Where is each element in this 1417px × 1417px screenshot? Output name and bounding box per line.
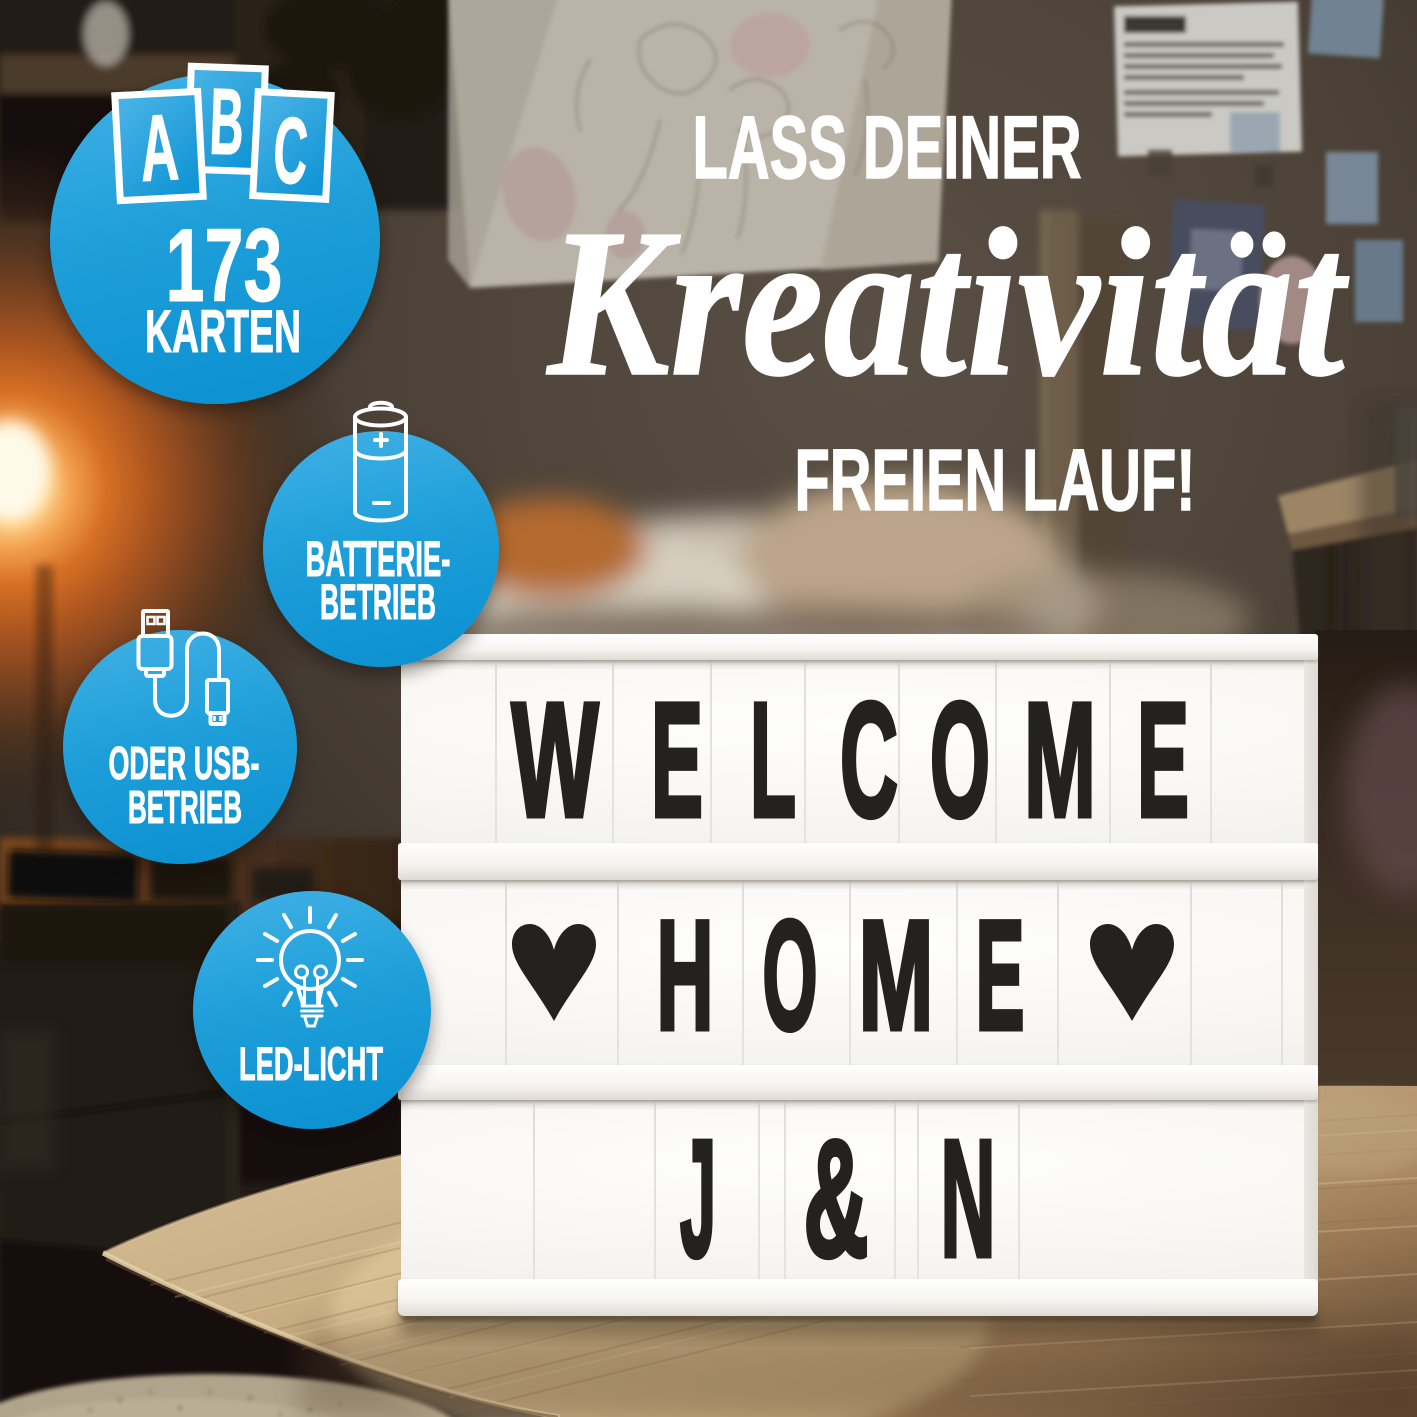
svg-text:LED-LICHT: LED-LICHT <box>239 1037 383 1090</box>
svg-text:FREIEN LAUF!: FREIEN LAUF! <box>795 432 1196 529</box>
svg-text:BETRIEB: BETRIEB <box>128 781 242 833</box>
svg-text:BETRIEB: BETRIEB <box>320 574 436 630</box>
svg-text:LASS DEINER: LASS DEINER <box>693 97 1082 197</box>
svg-text:Kreativität: Kreativität <box>546 185 1350 420</box>
